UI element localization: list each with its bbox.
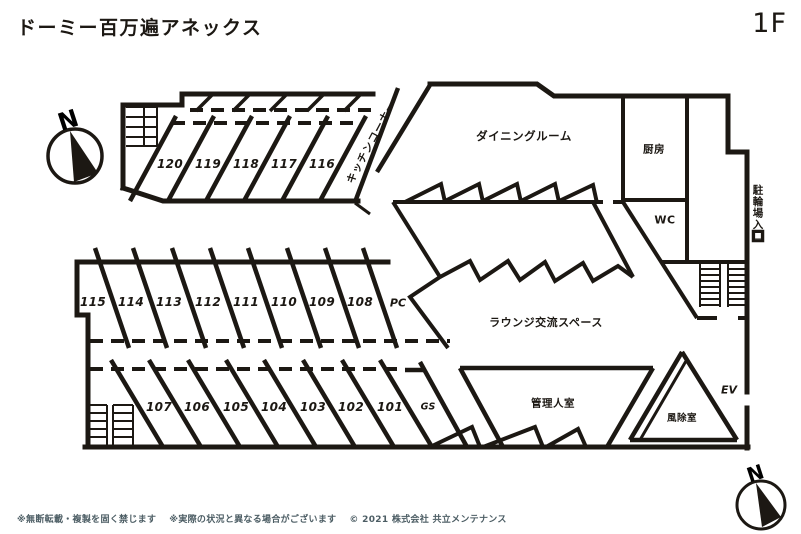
room-117-label: 117 bbox=[271, 157, 297, 171]
room-107-label: 107 bbox=[146, 400, 172, 414]
room-105-label: 105 bbox=[223, 400, 249, 414]
footer-notice-1: ※無断転載・複製を固く禁じます bbox=[17, 512, 156, 525]
compass-north-label: N bbox=[54, 104, 82, 137]
room-120-label: 120 bbox=[157, 157, 183, 171]
dining-room-label: ダイニングルーム bbox=[476, 128, 572, 144]
room-102-label: 102 bbox=[338, 400, 364, 414]
entrance-sawtooth bbox=[430, 427, 586, 447]
footer-copyright: © 2021 株式会社 共立メンテナンス bbox=[349, 512, 506, 525]
gs-label: GS bbox=[421, 402, 436, 413]
elevator-label: EV bbox=[721, 384, 737, 397]
floor-plan-drawing: N N bbox=[0, 0, 801, 534]
lounge-label: ラウンジ交流スペース bbox=[489, 314, 603, 330]
room-109-label: 109 bbox=[309, 295, 335, 309]
floor-plan-page: ドーミー百万遍アネックス 1F bbox=[0, 0, 801, 534]
room-112-label: 112 bbox=[195, 295, 221, 309]
room-108-label: 108 bbox=[347, 295, 373, 309]
room-101-label: 101 bbox=[377, 400, 403, 414]
dining-sawtooth-partition bbox=[393, 184, 623, 203]
compass-top-left: N bbox=[48, 104, 102, 183]
windbreak-room-label: 風除室 bbox=[667, 410, 697, 424]
rack-symbols bbox=[87, 405, 133, 445]
room-110-label: 110 bbox=[271, 295, 297, 309]
compass-needle-icon bbox=[756, 483, 781, 527]
footer-notice-2: ※実際の状況と異なる場合がございます bbox=[169, 512, 336, 525]
room-113-label: 113 bbox=[156, 295, 182, 309]
compass-bottom-right: N bbox=[737, 459, 785, 529]
wc-label: WC bbox=[654, 214, 675, 227]
manager-room-label: 管理人室 bbox=[531, 396, 575, 411]
room-115-label: 115 bbox=[80, 295, 106, 309]
room-103-label: 103 bbox=[300, 400, 326, 414]
bicycle-entrance-label: 駐輪場入口 bbox=[751, 184, 766, 242]
pc-label: PC bbox=[390, 297, 406, 310]
room-114-label: 114 bbox=[118, 295, 144, 309]
room-111-label: 111 bbox=[233, 295, 259, 309]
room-116-label: 116 bbox=[309, 157, 335, 171]
staircase-top-left bbox=[126, 107, 157, 146]
kitchen-label: 厨房 bbox=[643, 142, 665, 157]
room-119-label: 119 bbox=[195, 157, 221, 171]
compass-north-label: N bbox=[744, 459, 767, 487]
room-104-label: 104 bbox=[261, 400, 287, 414]
staircase-right bbox=[700, 263, 747, 307]
footer-notices: ※無断転載・複製を固く禁じます ※実際の状況と異なる場合がございます © 202… bbox=[17, 512, 507, 525]
room-106-label: 106 bbox=[184, 400, 210, 414]
room-118-label: 118 bbox=[233, 157, 259, 171]
